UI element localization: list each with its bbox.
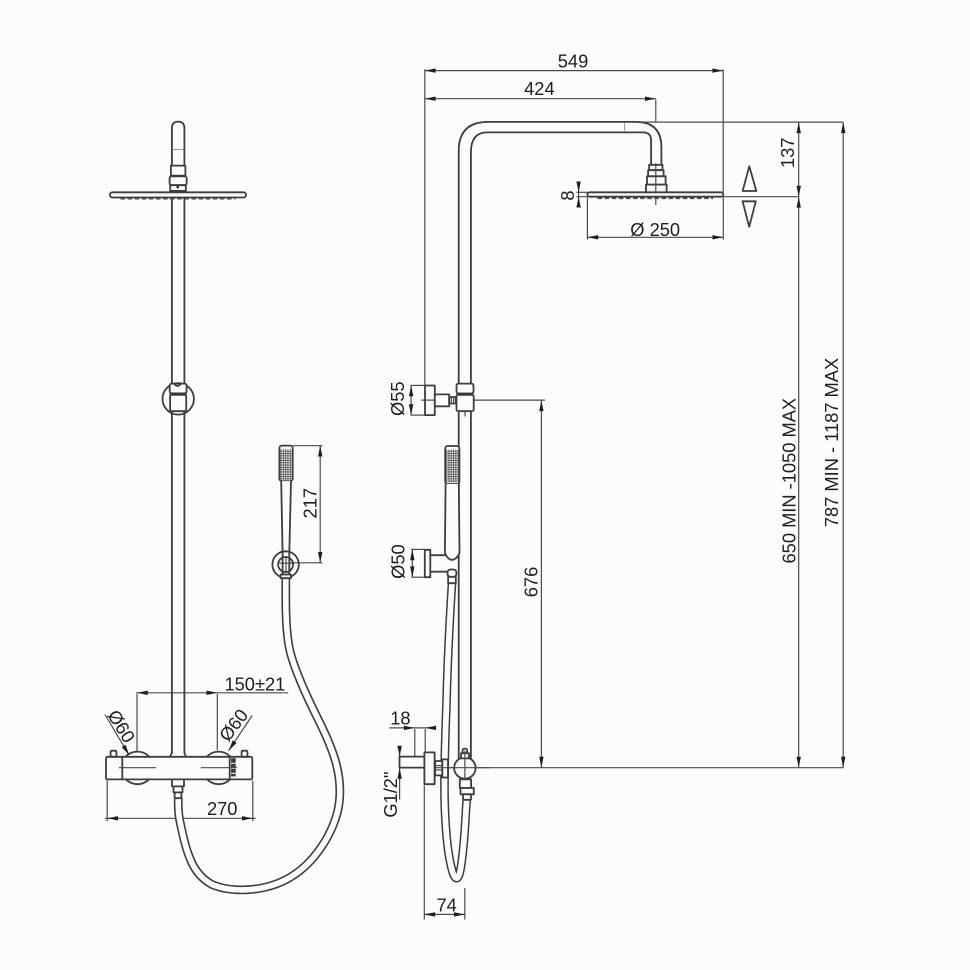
svg-text:74: 74 [437, 895, 457, 916]
svg-text:Ø50: Ø50 [388, 544, 409, 579]
svg-text:676: 676 [521, 567, 542, 598]
svg-text:Ø 250: Ø 250 [630, 219, 680, 240]
svg-text:18: 18 [390, 707, 410, 728]
svg-text:150±21: 150±21 [224, 673, 285, 694]
svg-text:8: 8 [557, 190, 578, 200]
svg-text:787 MIN - 1187 MAX: 787 MIN - 1187 MAX [821, 358, 842, 527]
svg-text:G1/2": G1/2" [380, 772, 401, 818]
svg-text:424: 424 [524, 78, 555, 99]
svg-text:650 MIN -1050 MAX: 650 MIN -1050 MAX [779, 398, 800, 564]
svg-text:137: 137 [777, 138, 798, 169]
svg-text:217: 217 [300, 488, 321, 519]
svg-text:549: 549 [558, 50, 589, 71]
svg-text:270: 270 [207, 798, 238, 819]
svg-text:Ø55: Ø55 [387, 381, 408, 416]
